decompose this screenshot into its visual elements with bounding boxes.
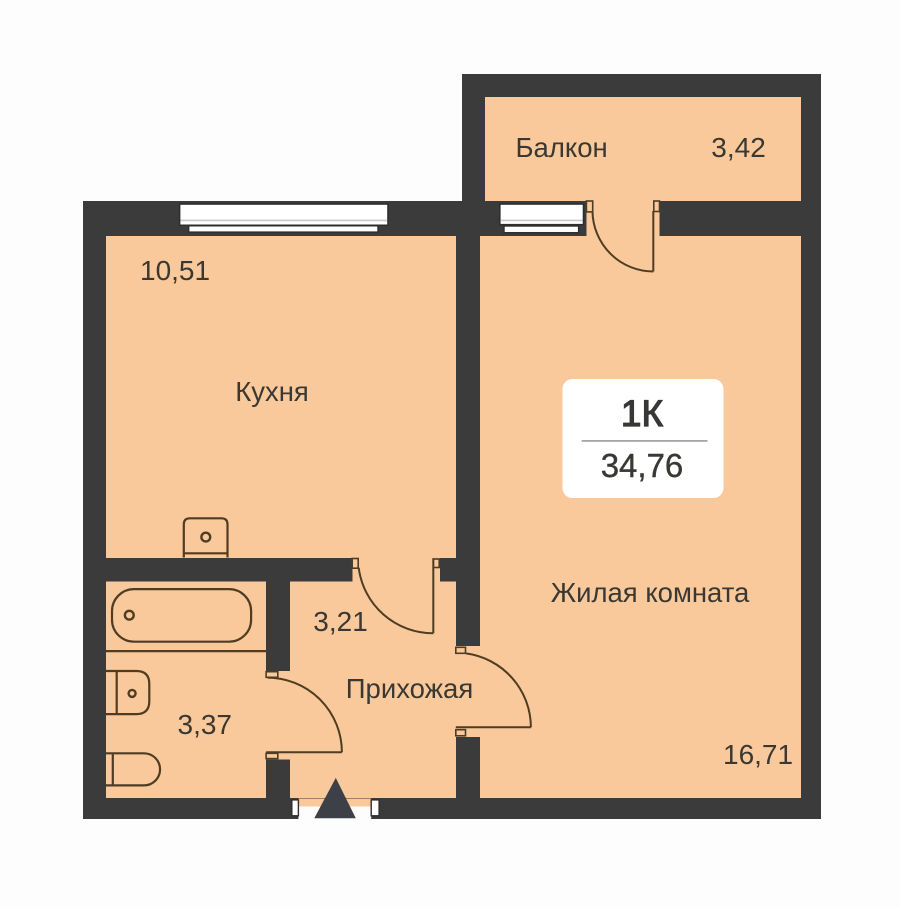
svg-text:16,71: 16,71 (723, 739, 793, 770)
svg-text:3,21: 3,21 (313, 606, 368, 637)
svg-text:3,37: 3,37 (178, 709, 233, 740)
svg-text:1К: 1К (621, 393, 664, 434)
svg-text:10,51: 10,51 (140, 255, 210, 286)
svg-text:3,42: 3,42 (711, 132, 766, 163)
svg-text:34,76: 34,76 (601, 447, 684, 484)
svg-text:Жилая комната: Жилая комната (551, 577, 750, 608)
svg-text:Прихожая: Прихожая (346, 673, 473, 704)
svg-text:Кухня: Кухня (235, 376, 309, 407)
svg-text:Балкон: Балкон (516, 132, 608, 163)
